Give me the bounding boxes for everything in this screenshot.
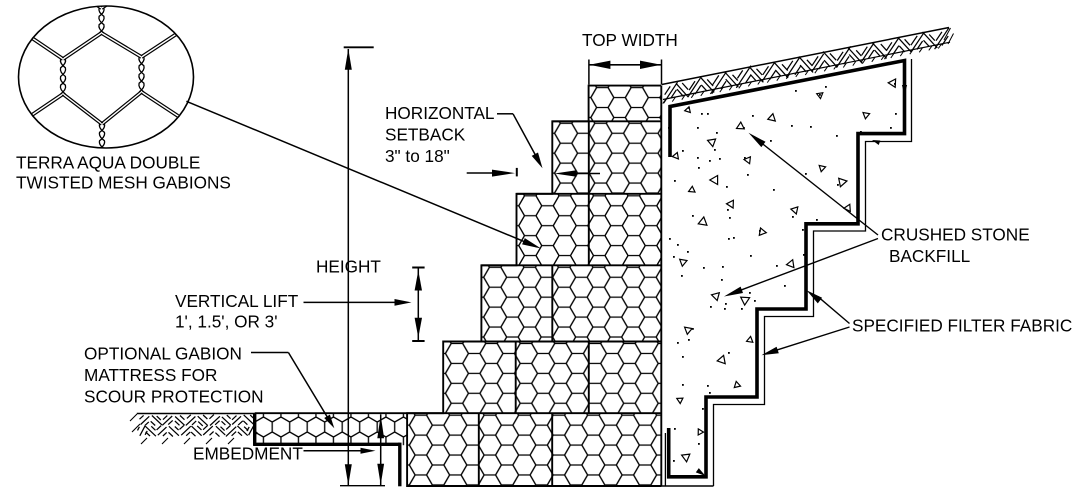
svg-text:SETBACK: SETBACK xyxy=(385,125,466,145)
svg-text:TWISTED MESH GABIONS: TWISTED MESH GABIONS xyxy=(16,173,231,193)
svg-text:BACKFILL: BACKFILL xyxy=(889,246,970,266)
svg-text:EMBEDMENT: EMBEDMENT xyxy=(193,444,303,464)
svg-text:OPTIONAL GABION: OPTIONAL GABION xyxy=(84,344,242,364)
svg-text:SPECIFIED FILTER FABRIC: SPECIFIED FILTER FABRIC xyxy=(852,316,1072,336)
svg-text:1', 1.5', OR 3': 1', 1.5', OR 3' xyxy=(175,311,278,331)
svg-text:HORIZONTAL: HORIZONTAL xyxy=(385,103,495,123)
svg-text:3" to 18": 3" to 18" xyxy=(385,146,450,166)
svg-text:MATTRESS FOR: MATTRESS FOR xyxy=(84,365,217,385)
svg-text:HEIGHT: HEIGHT xyxy=(316,257,381,277)
svg-text:TERRA AQUA DOUBLE: TERRA AQUA DOUBLE xyxy=(16,153,200,173)
svg-text:TOP WIDTH: TOP WIDTH xyxy=(582,30,678,50)
svg-text:CRUSHED STONE: CRUSHED STONE xyxy=(881,225,1030,245)
svg-text:VERTICAL LIFT: VERTICAL LIFT xyxy=(175,291,299,311)
svg-text:SCOUR PROTECTION: SCOUR PROTECTION xyxy=(84,387,264,407)
